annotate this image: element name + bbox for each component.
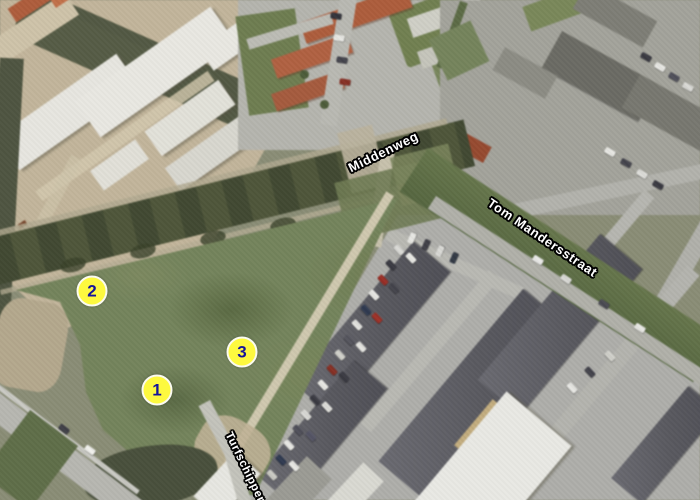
satellite-map-viewport[interactable]: Middenweg Tom Mandersstraat Turfschipper… <box>0 0 700 500</box>
map-marker-3[interactable]: 3 <box>227 337 258 368</box>
marker-number: 3 <box>237 342 246 362</box>
dirt-patch <box>0 295 72 396</box>
aerial-imagery <box>0 0 700 500</box>
tree <box>320 100 329 109</box>
map-marker-1[interactable]: 1 <box>142 375 173 406</box>
marker-number: 1 <box>152 380 161 400</box>
marker-number: 2 <box>87 281 96 301</box>
tree <box>300 70 309 79</box>
map-marker-2[interactable]: 2 <box>77 276 108 307</box>
